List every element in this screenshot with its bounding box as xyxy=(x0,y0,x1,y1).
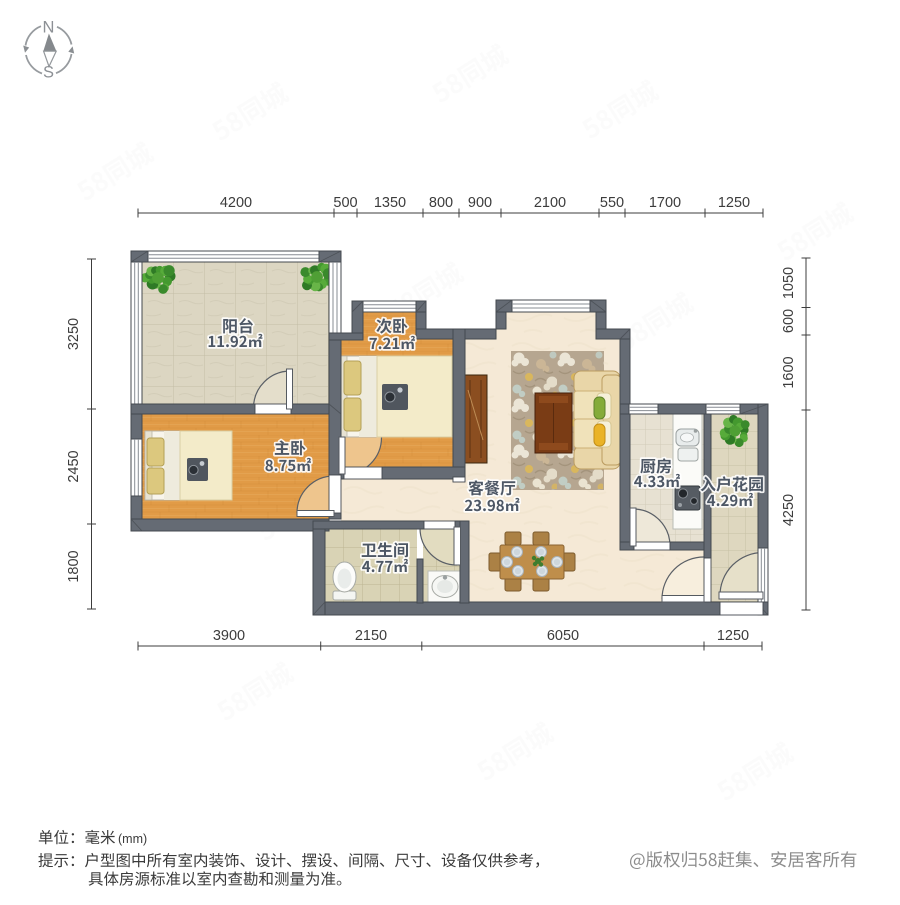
svg-text:3900: 3900 xyxy=(213,628,245,644)
svg-text:1700: 1700 xyxy=(649,195,681,211)
svg-text:2450: 2450 xyxy=(66,450,82,482)
svg-text:2150: 2150 xyxy=(355,628,387,644)
svg-text:1350: 1350 xyxy=(374,195,406,211)
svg-text:1800: 1800 xyxy=(66,550,82,582)
svg-text:550: 550 xyxy=(600,195,624,211)
svg-text:600: 600 xyxy=(781,309,797,333)
svg-text:S: S xyxy=(43,64,54,82)
svg-text:800: 800 xyxy=(429,195,453,211)
svg-text:6050: 6050 xyxy=(547,628,579,644)
svg-text:N: N xyxy=(43,19,55,37)
svg-text:4200: 4200 xyxy=(220,195,252,211)
svg-text:3250: 3250 xyxy=(66,318,82,350)
svg-text:(mm): (mm) xyxy=(118,832,147,846)
svg-text:1250: 1250 xyxy=(718,195,750,211)
svg-text:900: 900 xyxy=(468,195,492,211)
svg-text:4250: 4250 xyxy=(781,494,797,526)
svg-text:1250: 1250 xyxy=(717,628,749,644)
svg-text:500: 500 xyxy=(333,195,357,211)
svg-text:1050: 1050 xyxy=(781,267,797,299)
svg-text:2100: 2100 xyxy=(534,195,566,211)
svg-text:1600: 1600 xyxy=(781,356,797,388)
